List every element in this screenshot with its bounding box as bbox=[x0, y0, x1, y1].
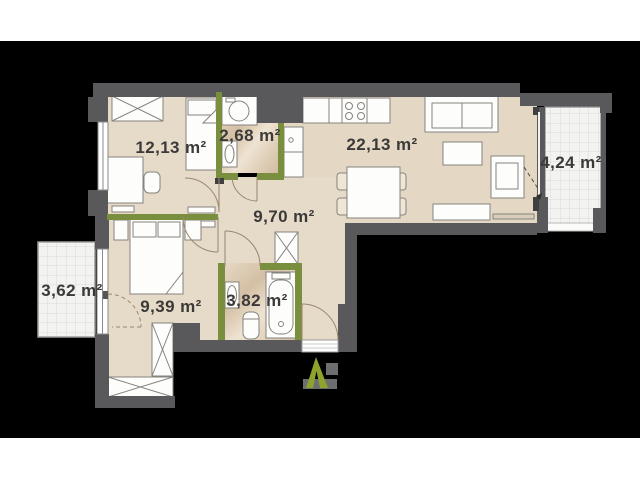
area-label-room-12: 12,13 m² bbox=[135, 138, 206, 157]
coffee-table-symbol bbox=[443, 142, 482, 165]
wardrobe-column-symbol bbox=[152, 323, 173, 376]
partition-bathroom-left bbox=[218, 263, 225, 340]
tv-stand-symbol bbox=[433, 204, 490, 220]
kitchen-counter-symbol bbox=[303, 98, 390, 123]
wall-bedroom-left-upper bbox=[95, 216, 109, 249]
wall-bathroom-bottom bbox=[173, 340, 302, 352]
kitchen-sink-column-symbol bbox=[284, 127, 303, 177]
area-label-bedroom: 9,39 m² bbox=[140, 297, 201, 316]
balcony-right-threshold bbox=[545, 223, 601, 231]
wall-bedroom-bottom bbox=[95, 396, 175, 408]
toilet-symbol bbox=[243, 312, 259, 339]
entrance-threshold bbox=[302, 340, 338, 352]
bed-symbol-bedroom bbox=[130, 219, 183, 294]
partition-wc-bottom-right bbox=[257, 173, 284, 180]
wall-top bbox=[93, 83, 520, 97]
wall-living-bottom bbox=[345, 223, 537, 235]
area-label-balcony-left: 3,62 m² bbox=[41, 281, 102, 300]
wall-balcony-corner bbox=[593, 208, 606, 233]
radiator-room12 bbox=[112, 206, 134, 212]
window-room12 bbox=[98, 122, 108, 190]
area-label-bathroom: 3,82 m² bbox=[226, 291, 287, 310]
wall-chunk-kitchen bbox=[257, 83, 303, 123]
wall-hall-right bbox=[345, 223, 357, 308]
partition-bathroom-right bbox=[295, 268, 302, 340]
door-leaf-room12-top bbox=[188, 207, 215, 213]
wall-step bbox=[173, 323, 200, 340]
nightstand-left-symbol bbox=[114, 220, 128, 240]
desk-chair-symbol bbox=[144, 172, 160, 193]
area-label-balcony-right: 4,24 m² bbox=[540, 153, 601, 172]
entrance-logo-icon bbox=[303, 357, 338, 389]
wall-left-mid bbox=[88, 190, 108, 216]
ventilation-shaft-symbol bbox=[275, 232, 298, 264]
washing-machine-symbol bbox=[222, 96, 257, 125]
wall-top-right bbox=[520, 93, 612, 106]
partition-bedroom-top bbox=[107, 214, 218, 220]
door-cap-bottom bbox=[533, 197, 539, 211]
area-label-hall: 9,70 m² bbox=[253, 207, 314, 226]
area-label-wc: 2,68 m² bbox=[219, 126, 280, 145]
logo-side-block bbox=[326, 363, 338, 375]
sofa-symbol bbox=[425, 95, 498, 132]
apartment-floorplan: 12,13 m² 2,68 m² 22,13 m² 4,24 m² 9,70 m… bbox=[0, 0, 640, 480]
tv-symbol bbox=[493, 214, 534, 219]
wardrobe-bottom-symbol bbox=[108, 377, 173, 397]
wardrobe-symbol-room12 bbox=[112, 96, 163, 121]
area-label-living: 22,13 m² bbox=[346, 135, 417, 154]
wall-left-upper bbox=[88, 97, 108, 122]
armchair-symbol bbox=[491, 156, 524, 198]
bed-symbol-room12 bbox=[186, 98, 218, 170]
floorplan-image: 12,13 m² 2,68 m² 22,13 m² 4,24 m² 9,70 m… bbox=[0, 0, 640, 480]
desk-symbol bbox=[107, 157, 143, 203]
nightstand-right-symbol bbox=[185, 220, 201, 240]
wall-entrance-right bbox=[338, 304, 357, 352]
dining-table-symbol bbox=[337, 167, 406, 218]
